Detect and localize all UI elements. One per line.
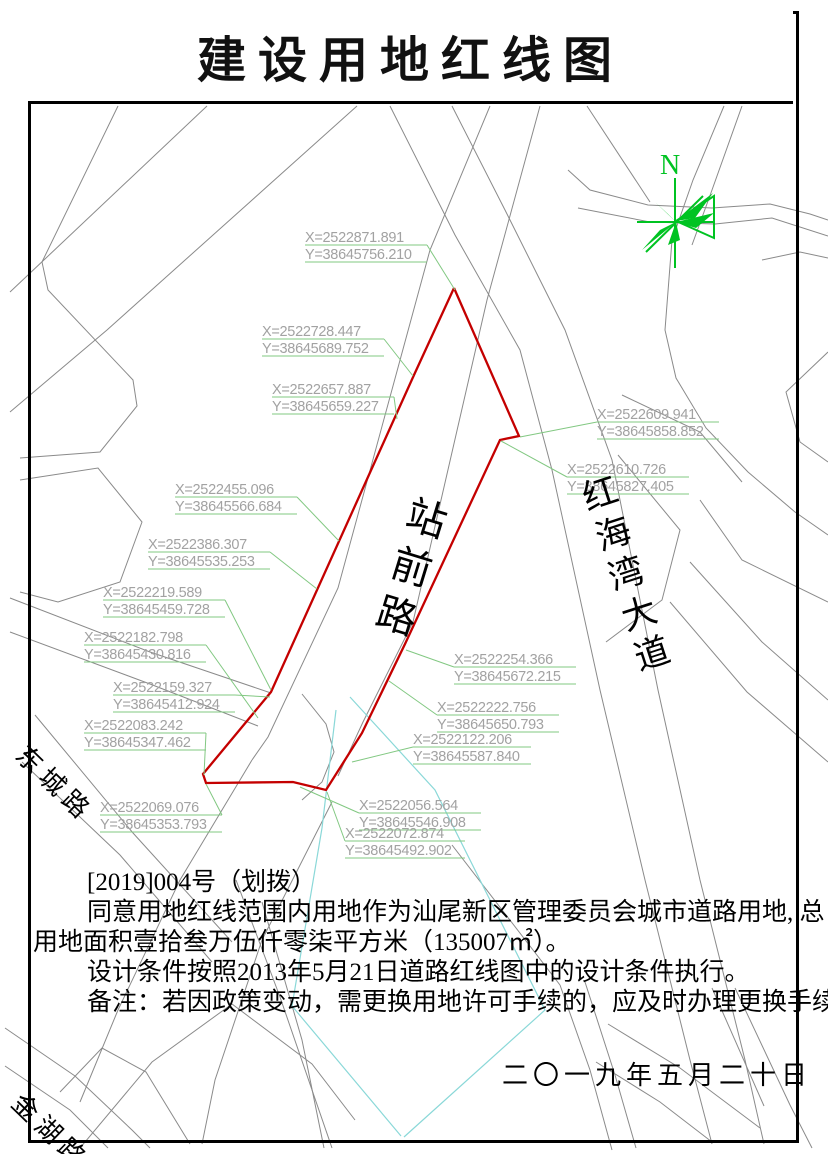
- note-doc-number: [2019]004号（划拨）: [33, 868, 785, 898]
- issue-date: 二〇一九年五月二十日: [502, 1055, 812, 1092]
- note-line-2: 用地面积壹拾叁万伍仟零柒平方米（135007㎡）。: [33, 928, 785, 958]
- note-line-3: 设计条件按照2013年5月21日道路红线图中的设计条件执行。: [33, 958, 785, 988]
- approval-notes: [2019]004号（划拨） 同意用地红线范围内用地作为汕尾新区管理委员会城市道…: [33, 868, 785, 1018]
- north-compass-icon: [630, 148, 740, 278]
- note-remark-line: 备注：若因政策变动，需更换用地许可手续的，应及时办理更换手续。: [33, 988, 785, 1018]
- title-box: 建设用地红线图: [28, 11, 793, 104]
- redline-drawing-page: X=2522871.891Y=38645756.210X=2522728.447…: [0, 0, 828, 1154]
- page-title: 建设用地红线图: [197, 21, 624, 92]
- note-line-1: 同意用地红线范围内用地作为汕尾新区管理委员会城市道路用地, 总: [33, 898, 785, 928]
